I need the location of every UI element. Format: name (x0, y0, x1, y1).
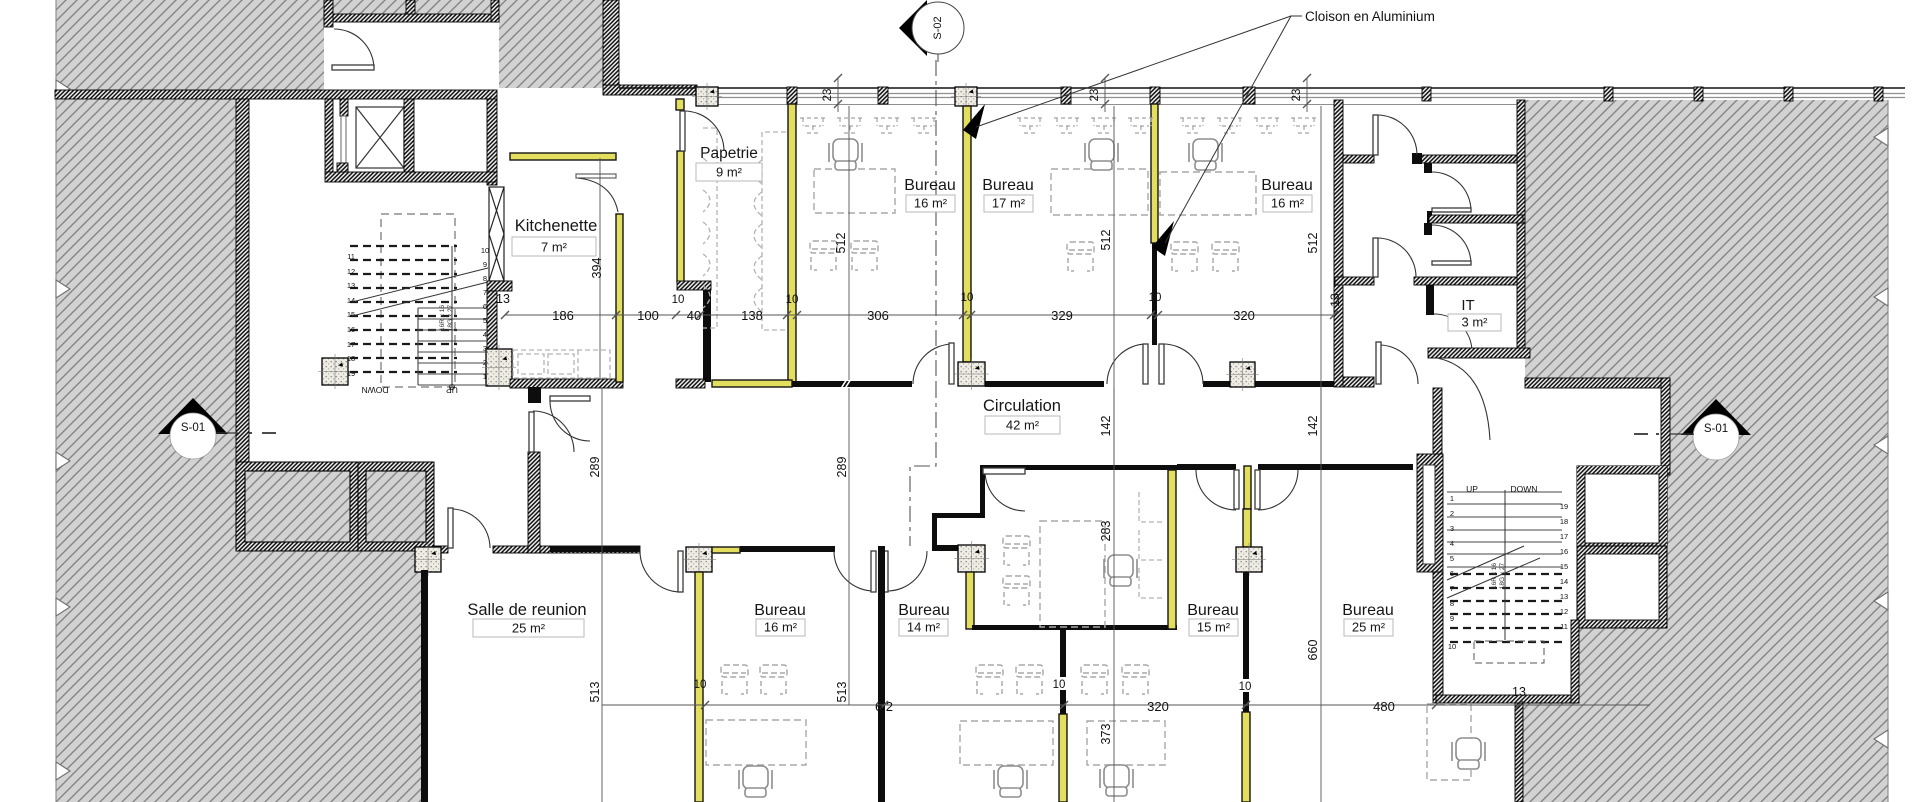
svg-text:7: 7 (483, 288, 487, 297)
svg-text:10: 10 (672, 294, 685, 306)
svg-text:138: 138 (741, 308, 763, 323)
svg-text:289: 289 (835, 457, 849, 478)
svg-text:9: 9 (483, 260, 487, 269)
svg-text:4: 4 (483, 330, 487, 339)
svg-text:320: 320 (1147, 699, 1169, 714)
svg-text:Papetrie: Papetrie (700, 145, 758, 162)
svg-text:513: 513 (588, 682, 602, 703)
svg-text:6: 6 (1450, 569, 1454, 578)
svg-text:7: 7 (1450, 584, 1454, 593)
svg-text:18: 18 (347, 354, 355, 363)
svg-text:Bureau: Bureau (754, 602, 806, 619)
svg-text:15 m²: 15 m² (1197, 620, 1231, 635)
svg-text:13: 13 (347, 281, 355, 290)
svg-text:13: 13 (1560, 592, 1568, 601)
svg-text:23: 23 (1089, 89, 1101, 102)
svg-text:19: 19 (347, 369, 355, 378)
svg-text:10: 10 (1149, 292, 1162, 304)
svg-text:Bureau: Bureau (898, 602, 950, 619)
svg-text:373: 373 (1099, 724, 1113, 745)
svg-text:394: 394 (590, 258, 604, 279)
svg-text:DOWN: DOWN (1511, 484, 1538, 494)
svg-text:142: 142 (1099, 416, 1113, 437)
svg-text:6 2: 6 2 (875, 699, 893, 714)
svg-text:12: 12 (1560, 607, 1568, 616)
svg-text:480: 480 (1373, 699, 1395, 714)
svg-text:16 m²: 16 m² (914, 196, 948, 211)
svg-text:25 m²: 25 m² (512, 621, 546, 636)
svg-text:14: 14 (1560, 577, 1568, 586)
svg-text:9 m²: 9 m² (716, 165, 743, 180)
svg-text:18G x 27: 18G x 27 (1499, 562, 1506, 589)
svg-text:14: 14 (347, 296, 355, 305)
svg-text:3: 3 (483, 344, 487, 353)
svg-text:13: 13 (1328, 293, 1342, 307)
svg-text:1: 1 (483, 372, 487, 381)
svg-text:Circulation: Circulation (983, 397, 1061, 415)
svg-text:306: 306 (867, 308, 889, 323)
svg-text:11: 11 (1560, 622, 1568, 631)
svg-text:13: 13 (496, 292, 510, 306)
svg-text:17 m²: 17 m² (992, 196, 1026, 211)
svg-text:3: 3 (1450, 524, 1454, 533)
svg-text:320: 320 (1233, 308, 1255, 323)
svg-text:512: 512 (1099, 230, 1113, 251)
svg-text:329: 329 (1051, 308, 1073, 323)
svg-text:UP: UP (1466, 484, 1478, 494)
svg-text:2: 2 (1450, 509, 1454, 518)
svg-text:16 m²: 16 m² (1271, 196, 1305, 211)
svg-text:283: 283 (1099, 521, 1113, 542)
svg-text:8: 8 (483, 274, 487, 283)
svg-text:S-02: S-02 (932, 16, 944, 39)
svg-text:10: 10 (786, 294, 799, 306)
svg-text:512: 512 (834, 233, 848, 254)
svg-text:100: 100 (637, 308, 659, 323)
svg-text:25 m²: 25 m² (1352, 620, 1386, 635)
svg-text:S-01: S-01 (181, 422, 205, 434)
svg-text:Kitchenette: Kitchenette (515, 217, 598, 235)
svg-text:17: 17 (347, 340, 355, 349)
svg-text:10: 10 (481, 246, 489, 255)
svg-text:186: 186 (552, 308, 574, 323)
svg-text:Bureau: Bureau (1342, 602, 1394, 619)
svg-text:9: 9 (1450, 614, 1454, 623)
svg-text:40: 40 (687, 308, 701, 323)
svg-text:Bureau: Bureau (1187, 602, 1239, 619)
svg-text:6: 6 (483, 302, 487, 311)
svg-text:Bureau: Bureau (982, 177, 1034, 194)
svg-text:5: 5 (1450, 554, 1454, 563)
svg-text:16R x 16: 16R x 16 (1491, 563, 1498, 589)
svg-text:Bureau: Bureau (904, 177, 956, 194)
svg-text:23: 23 (1291, 89, 1303, 102)
svg-text:660: 660 (1306, 640, 1320, 661)
svg-text:1: 1 (1450, 494, 1454, 503)
svg-text:Bureau: Bureau (1261, 177, 1313, 194)
svg-text:10: 10 (961, 292, 974, 304)
svg-text:7 m²: 7 m² (541, 240, 568, 255)
svg-text:UP: UP (446, 385, 458, 395)
svg-text:5: 5 (483, 316, 487, 325)
svg-text:2: 2 (483, 358, 487, 367)
svg-text:512: 512 (1306, 233, 1320, 254)
svg-text:14 m²: 14 m² (907, 620, 941, 635)
svg-text:18: 18 (1560, 517, 1568, 526)
svg-text:16: 16 (1560, 547, 1568, 556)
svg-text:23: 23 (822, 89, 834, 102)
svg-text:Cloison en Aluminium: Cloison en Aluminium (1305, 9, 1435, 24)
svg-text:10: 10 (1448, 642, 1456, 651)
svg-text:15: 15 (1560, 562, 1568, 571)
svg-text:17: 17 (1560, 532, 1568, 541)
svg-text:42 m²: 42 m² (1006, 418, 1040, 433)
svg-text:10: 10 (694, 679, 707, 691)
svg-text:289: 289 (588, 457, 602, 478)
svg-text:142: 142 (1306, 416, 1320, 437)
svg-text:12: 12 (347, 267, 355, 276)
svg-text:4: 4 (1450, 539, 1454, 548)
svg-text:11: 11 (347, 252, 355, 261)
svg-text:513: 513 (835, 682, 849, 703)
svg-text:S-01: S-01 (1704, 423, 1728, 435)
svg-text:10: 10 (1053, 679, 1066, 691)
svg-text:15: 15 (347, 310, 355, 319)
svg-text:3 m²: 3 m² (1462, 315, 1489, 330)
svg-text:19: 19 (1560, 502, 1568, 511)
svg-text:18G x 27: 18G x 27 (447, 304, 454, 331)
svg-text:IT: IT (1461, 297, 1474, 314)
svg-text:DOWN: DOWN (362, 385, 389, 395)
svg-text:16 m²: 16 m² (764, 620, 798, 635)
svg-text:Salle de reunion: Salle de reunion (467, 601, 586, 619)
svg-text:10: 10 (1239, 681, 1252, 693)
svg-text:13: 13 (1512, 685, 1526, 699)
svg-text:8: 8 (1450, 599, 1454, 608)
svg-text:16: 16 (347, 325, 355, 334)
svg-text:16R x 16: 16R x 16 (439, 305, 446, 331)
